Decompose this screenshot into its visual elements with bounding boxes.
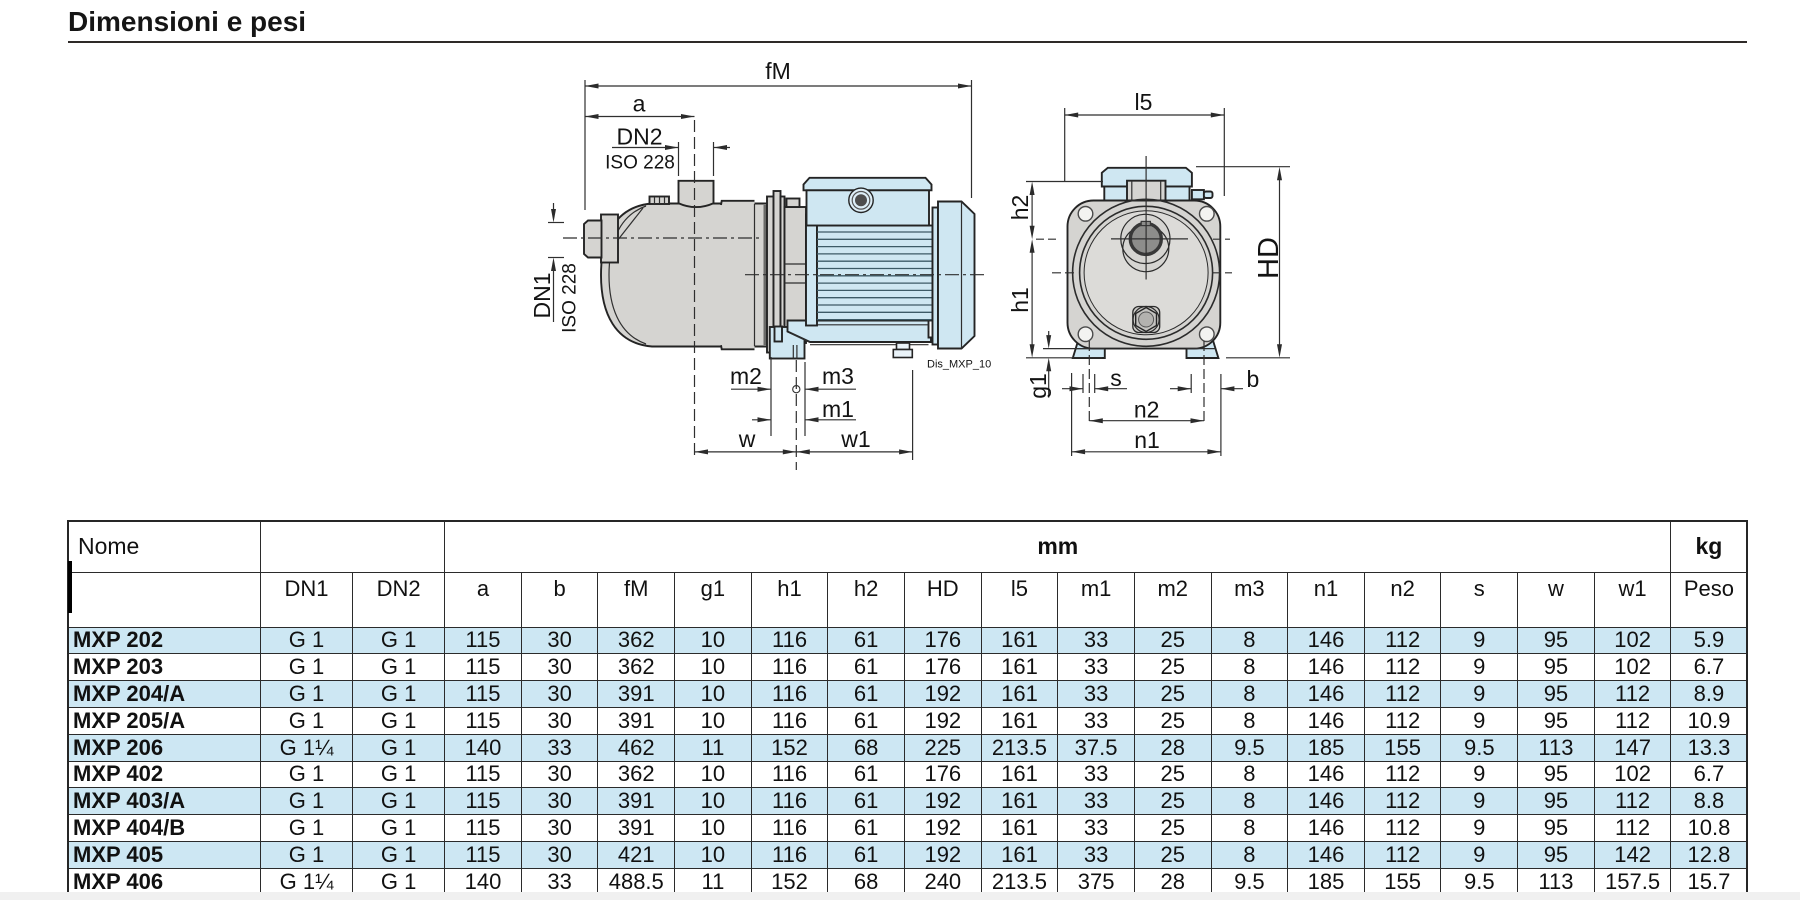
svg-text:DN1: DN1 <box>529 272 555 318</box>
svg-text:ISO 228: ISO 228 <box>605 153 675 174</box>
svg-text:g1: g1 <box>1025 373 1051 399</box>
svg-text:m1: m1 <box>822 396 854 422</box>
svg-text:h1: h1 <box>1007 287 1033 313</box>
svg-text:h2: h2 <box>1007 195 1033 221</box>
svg-text:w1: w1 <box>840 426 870 452</box>
svg-text:b: b <box>1247 366 1260 392</box>
svg-text:w: w <box>738 426 756 452</box>
svg-text:n1: n1 <box>1134 427 1160 453</box>
svg-text:DN2: DN2 <box>616 124 662 150</box>
svg-text:a: a <box>633 91 646 117</box>
svg-text:s: s <box>1110 365 1122 391</box>
svg-text:HD: HD <box>1253 237 1285 279</box>
svg-text:fM: fM <box>765 58 791 84</box>
svg-text:l5: l5 <box>1135 89 1153 115</box>
svg-text:n2: n2 <box>1134 397 1160 423</box>
svg-text:m3: m3 <box>822 363 854 389</box>
svg-text:m2: m2 <box>730 363 762 389</box>
svg-text:Dis_MXP_10: Dis_MXP_10 <box>927 359 991 371</box>
svg-text:ISO 228: ISO 228 <box>560 263 581 333</box>
